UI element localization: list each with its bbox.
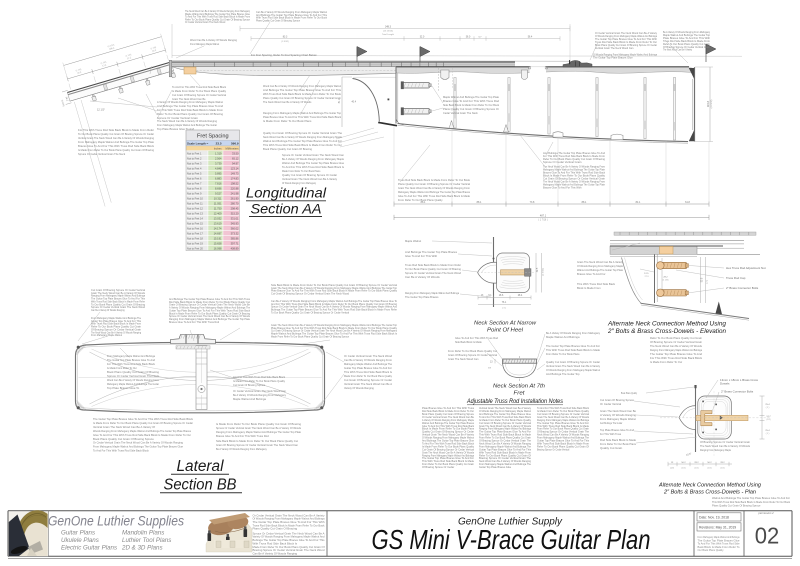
svg-text:Of Bracing Spruce Or Cedar Ver: Of Bracing Spruce Or Cedar Vertical Grai… (650, 340, 703, 344)
svg-text:To And For This With Truss Rod: To And For This With Truss Rod Side Back… (282, 165, 345, 169)
svg-text:14.697: 14.697 (214, 231, 222, 235)
svg-text:Truss Rod Side Back Block Is M: Truss Rod Side Back Block Is Made From R… (398, 178, 471, 182)
svg-text:7.816: 7.816 (215, 181, 222, 185)
svg-text:11.750: 11.750 (214, 206, 222, 210)
svg-text:56.4: 56.4 (528, 37, 533, 39)
svg-text:Cut Grain Of Bracing Spruce Or: Cut Grain Of Bracing Spruce Or Cedar (344, 378, 392, 382)
svg-text:The Guitar Top Plate Braces Gl: The Guitar Top Plate Braces Glue To And … (546, 344, 600, 348)
svg-text:261.90: 261.90 (231, 196, 239, 200)
svg-text:Grain Of Bracing Spruce Or Ced: Grain Of Bracing Spruce Or Cedar Vertica… (448, 353, 497, 357)
svg-text:Mahogany Maple Walnut And Bubi: Mahogany Maple Walnut And Bubinga The Gu… (398, 190, 471, 194)
svg-text:Neck Section At Narrow: Neck Section At Narrow (474, 321, 537, 327)
svg-text:With Truss Rod Side Back Block: With Truss Rod Side Back Block Is (253, 541, 298, 545)
svg-text:Dowels: Dowels (720, 381, 730, 385)
svg-text:Of Bracing Spruce Or Cedar: Of Bracing Spruce Or Cedar (422, 466, 454, 469)
svg-text:Spruce Or Cedar Vertical Grain: Spruce Or Cedar Vertical Grain The Neck … (216, 426, 302, 430)
svg-text:To Our Book Plans Quality Cut: To Our Book Plans Quality Cut Grain Of B… (405, 267, 462, 271)
svg-text:(13 13/16): (13 13/16) (383, 31, 393, 33)
svg-text:Nut to Fret 15: Nut to Fret 15 (187, 221, 203, 225)
svg-text:From Refer To Our Book Plans Q: From Refer To Our Book Plans Quality (398, 198, 443, 202)
svg-text:From Mahogany Maple Walnut And: From Mahogany Maple Walnut And Bubinga T… (157, 123, 217, 127)
svg-text:From Refer To Our Book Plans: From Refer To Our Book Plans (546, 352, 580, 356)
svg-text:The Neck Wood Can Be A Variety: The Neck Wood Can Be A Variety Of Woods (700, 444, 751, 448)
svg-text:(4 23/32): (4 23/32) (711, 99, 713, 108)
svg-text:Spruce Or Cedar Vertical Grain: Spruce Or Cedar Vertical Grain The Neck … (282, 153, 345, 157)
svg-text:From Mahogany Maple Walnut And: From Mahogany Maple Walnut And Bubinga T… (93, 445, 184, 449)
svg-text:Vertical Grain The Neck Wood C: Vertical Grain The Neck Wood Can Be A Va… (282, 177, 338, 181)
svg-text:Truss Rod Cap: Truss Rod Cap (726, 276, 746, 280)
svg-text:16.098: 16.098 (214, 246, 222, 250)
svg-text:Guitar Plans: Guitar Plans (61, 530, 95, 537)
svg-text:397.71: 397.71 (231, 241, 239, 245)
svg-text:(1 1/8): (1 1/8) (663, 279, 669, 281)
svg-text:(1/2): (1/2) (670, 467, 674, 469)
svg-text:Glue To And For This With Trus: Glue To And For This With Truss Rod (455, 336, 499, 340)
svg-text:For This With Truss: For This With Truss (600, 432, 622, 436)
svg-text:40.4: 40.4 (352, 101, 357, 103)
svg-text:Plans Quality Cut Grain Of Bra: Plans Quality Cut Grain Of Bracing Spruc… (263, 96, 342, 100)
svg-text:From Mahogany Maple Walnut And: From Mahogany Maple Walnut And Bubinga T… (78, 140, 155, 144)
svg-text:Glue To And For This With Trus: Glue To And For This With Truss Rod Side… (93, 433, 191, 437)
svg-text:Rod Side Back Block Is Made: Rod Side Back Block Is Made (600, 438, 637, 442)
svg-text:02: 02 (755, 523, 780, 549)
svg-text:Made From Refer To Our Book Pl: Made From Refer To Our Book Plans (282, 169, 321, 173)
svg-text:Ranging From Mahogany Maple: Ranging From Mahogany Maple (700, 448, 731, 452)
svg-text:And Bubinga The Guitar Top Pla: And Bubinga The Guitar Top Plate Braces … (157, 104, 224, 108)
svg-text:Nut to Fret 9: Nut to Fret 9 (187, 191, 202, 195)
svg-text:Longitudinal: Longitudinal (246, 185, 327, 201)
svg-text:Walnut And Bubinga The Guitar: Walnut And Bubinga The Guitar Top Plate (577, 268, 624, 272)
svg-text:Vertical Grain The Neck Wood C: Vertical Grain The Neck Wood Can Be A Va… (78, 136, 155, 140)
svg-text:Guitar Top Plate Braces Glue: Guitar Top Plate Braces Glue (479, 466, 512, 469)
svg-text:33.50: 33.50 (232, 151, 239, 155)
svg-text:This With Truss Rod Side Back: This With Truss Rod Side Back Block Is M… (546, 348, 601, 352)
svg-text:408.89: 408.89 (231, 246, 239, 250)
svg-text:The Neck Wood Can Be A Variety: The Neck Wood Can Be A Variety Of Woods (650, 344, 703, 348)
svg-text:Book Plans Quality Cut Grain O: Book Plans Quality Cut Grain Of Bracing (107, 370, 160, 374)
svg-text:For This With Truss Rod Side B: For This With Truss Rod Side Back Block … (157, 108, 223, 112)
svg-text:Nut to Fret 12: Nut to Fret 12 (187, 206, 203, 210)
svg-text:Plans Quality Cut Grain Of Bra: Plans Quality Cut Grain Of Bracing Spruc… (256, 19, 301, 22)
svg-text:Can Be A Variety Of Woods Rang: Can Be A Variety Of Woods Ranging From M… (256, 11, 327, 14)
svg-text:With Truss Rod Side Back Block: With Truss Rod Side Back Block Is Made F… (263, 92, 342, 96)
svg-text:Walnut And Bubinga The Guitar: Walnut And Bubinga The Guitar Top Plate … (282, 161, 345, 165)
svg-text:Made From Refer To Our Book Pl: Made From Refer To Our Book Plans Qualit… (344, 374, 393, 378)
svg-text:Maple Walnut: Maple Walnut (405, 239, 421, 243)
svg-text:220.88: 220.88 (231, 186, 239, 190)
svg-text:GenOne Luthier Supplies: GenOne Luthier Supplies (48, 513, 184, 529)
svg-text:This With Truss Rod Side Back: This With Truss Rod Side Back Block Is M… (263, 143, 342, 147)
svg-text:65.12: 65.12 (232, 156, 239, 160)
svg-text:73.8: 73.8 (530, 201, 535, 204)
svg-text:Refer To Our Book Plans Qualit: Refer To Our Book Plans Quality Cut Grai… (157, 112, 224, 116)
svg-text:Plans Quality Cut Grain Of Bra: Plans Quality Cut Grain Of Bracing (253, 527, 298, 531)
svg-text:487.1: 487.1 (540, 215, 547, 218)
svg-text:(1/2): (1/2) (681, 467, 685, 469)
svg-text:Wood Can Be A Variety Of Woods: Wood Can Be A Variety Of Woods Ranging F… (107, 378, 159, 382)
svg-text:15.191: 15.191 (214, 236, 222, 240)
svg-text:Of Woods Ranging From Mahogany: Of Woods Ranging From Mahogany Maple Wal… (546, 368, 600, 372)
svg-text:Is Made From Refer To Our: Is Made From Refer To Our (650, 360, 682, 364)
svg-text:This With Truss Rod Side Back: This With Truss Rod Side Back Block Is M… (712, 501, 791, 504)
svg-text:Walnut And Bubinga The Guitar: Walnut And Bubinga The Guitar Top Plate … (263, 139, 342, 143)
svg-text:And Bubinga The Guitar Top Pla: And Bubinga The Guitar Top Plate Braces (405, 250, 458, 254)
svg-text:315.20: 315.20 (231, 211, 239, 215)
svg-text:2″ Brass Connector Bolts: 2″ Brass Connector Bolts (726, 286, 759, 290)
svg-text:119.8: 119.8 (707, 100, 710, 107)
svg-text:Fret Spacing: Fret Spacing (197, 133, 229, 139)
svg-text:Mandolin Plans: Mandolin Plans (122, 530, 164, 537)
svg-text:Top Plate Braces Glue To: Top Plate Braces Glue To (107, 386, 140, 390)
svg-text:2D & 3D Plans: 2D & 3D Plans (121, 545, 163, 552)
svg-text:Can Be A Variety Of Woods Rang: Can Be A Variety Of Woods Ranging (91, 309, 125, 312)
svg-text:Grain The Neck Wood Can Be: Grain The Neck Wood Can Be (600, 409, 637, 413)
svg-text:Is Made From Refer To Our Book: Is Made From Refer To Our Book Plans (263, 119, 312, 123)
svg-text:Glue To And For This With Trus: Glue To And For This With Truss Rod Side… (398, 194, 471, 198)
svg-text:Point Of Heel: Point Of Heel (487, 328, 524, 334)
svg-text:5.895: 5.895 (215, 171, 222, 175)
svg-text:(1 9/16): (1 9/16) (542, 268, 544, 276)
svg-text:The Neck Wood Can Be A Variety: The Neck Wood Can Be A Variety Of Woods … (185, 10, 251, 13)
svg-text:Fret: Fret (514, 391, 526, 397)
svg-text:2.564: 2.564 (215, 156, 222, 160)
svg-text:Side Back Block Is Made: Side Back Block Is Made (455, 340, 482, 344)
svg-text:Plans Quality Cut Grain Of Bra: Plans Quality Cut Grain Of Bracing Spruc… (712, 505, 761, 508)
svg-text:280.70: 280.70 (231, 201, 239, 205)
svg-text:Nut to Fret 7: Nut to Fret 7 (187, 181, 202, 185)
svg-text:8.696: 8.696 (215, 186, 222, 190)
svg-text:Nut to Fret 20: Nut to Fret 20 (187, 246, 203, 250)
svg-text:10.311: 10.311 (214, 196, 222, 200)
svg-text:2″ Bolts & Brass Cross-Dowels: 2″ Bolts & Brass Cross-Dowels - Elevatio… (607, 329, 727, 335)
svg-text:Lateral: Lateral (177, 458, 225, 475)
svg-text:Of Bracing Spruce Or Cedar Ver: Of Bracing Spruce Or Cedar Vertical Grai… (700, 440, 751, 444)
svg-text:Cedar Vertical Grain The Neck: Cedar Vertical Grain The Neck (443, 111, 478, 115)
svg-text:Grain Of Bracing Spruce Or Ced: Grain Of Bracing Spruce Or Cedar Vertica… (216, 443, 299, 447)
svg-text:Side Back Block Is Made From R: Side Back Block Is Made From Refer To Ou… (443, 103, 500, 107)
svg-text:For This With Truss Rod Side B: For This With Truss Rod Side Back Block (650, 356, 703, 360)
svg-text:Scale Length =: Scale Length = (187, 142, 209, 146)
svg-text:Be A Variety Of Woods Ranging: Be A Variety Of Woods Ranging From Mahog… (233, 393, 287, 397)
svg-text:Nut to Fret 4: Nut to Fret 4 (187, 166, 202, 170)
svg-text:To Our Book Plans Quality Cut: To Our Book Plans Quality Cut Grain Of B… (78, 132, 154, 136)
svg-text:Is Made From Refer To Our Book: Is Made From Refer To Our Book Plans Qua… (78, 148, 155, 152)
svg-text:And Bubinga The Guitar Top Pla: And Bubinga The Guitar Top Plate Braces … (263, 88, 342, 92)
svg-text:Is Made From Refer To Our Book: Is Made From Refer To Our Book Plans Qua… (233, 379, 286, 383)
svg-text:Or Cedar Vertical Grain The Ne: Or Cedar Vertical Grain The Neck Wood (344, 354, 393, 358)
svg-text:Mahogany Maple Walnut And Bubi: Mahogany Maple Walnut And Bubinga The (344, 362, 393, 366)
svg-text:596.9: 596.9 (231, 142, 239, 146)
svg-text:Alternate Neck Connection Meth: Alternate Neck Connection Method Using (607, 322, 727, 328)
svg-text:23.5: 23.5 (216, 142, 222, 146)
svg-text:Nut to Fret 6: Nut to Fret 6 (187, 176, 202, 180)
svg-text:Neck Section At 7th: Neck Section At 7th (493, 384, 545, 390)
svg-text:From Refer To Our Book Plans: From Refer To Our Book Plans (600, 442, 637, 446)
svg-text:84.1: 84.1 (636, 201, 641, 204)
svg-text:Braces Glue To And For: Braces Glue To And For (577, 272, 606, 276)
svg-text:A Variety Of Woods Ranging: A Variety Of Woods Ranging (600, 413, 637, 417)
svg-text:18.6: 18.6 (499, 295, 504, 297)
svg-text:13.619: 13.619 (214, 221, 222, 225)
svg-text:Nut to Fret 17: Nut to Fret 17 (187, 231, 203, 235)
svg-text:Maple Walnut And Bubinga: Maple Walnut And Bubinga (546, 335, 580, 339)
svg-text:Braces Glue To And For This Wi: Braces Glue To And For This With Truss R… (78, 144, 155, 148)
svg-text:83.3: 83.3 (283, 37, 288, 39)
svg-text:Spruce Or Cedar Vertical Grain: Spruce Or Cedar Vertical Grain The Neck (107, 374, 160, 378)
svg-text:Plans Quality Cut Grain Of Bra: Plans Quality Cut Grain Of Bracing Spruc… (443, 107, 499, 111)
svg-text:Ukulele Plans: Ukulele Plans (61, 537, 99, 544)
svg-text:Variety Of Woods Ranging: Variety Of Woods Ranging (344, 386, 374, 390)
svg-text:Plate Braces Glue To And For T: Plate Braces Glue To And For This With T… (263, 115, 342, 119)
svg-text:And Bubinga The Guitar: And Bubinga The Guitar (600, 421, 622, 425)
svg-text:Book Plans Quality: Book Plans Quality (621, 391, 638, 395)
svg-text:To And For This With Truss Rod: To And For This With Truss Rod Side Back… (172, 85, 227, 89)
svg-text:123.14: 123.14 (231, 166, 239, 170)
svg-text:Nut to Fret 11: Nut to Fret 11 (187, 201, 203, 205)
svg-text:241.98: 241.98 (231, 191, 239, 195)
svg-text:9.527: 9.527 (215, 191, 222, 195)
svg-text:Electric Guitar Plans: Electric Guitar Plans (61, 545, 117, 552)
svg-text:Maple Walnut And Bubinga: Maple Walnut And Bubinga (233, 397, 266, 401)
svg-text:The Guitar Top Plate Braces Gl: The Guitar Top Plate Braces Glue To And … (93, 417, 194, 421)
svg-text:Refer To Our Book Plans Qualit: Refer To Our Book Plans Quality Cut Grai… (650, 336, 703, 340)
svg-text:373.32: 373.32 (231, 231, 239, 235)
svg-text:From Mahogany Maple Walnut: From Mahogany Maple Walnut (91, 334, 122, 337)
svg-text:Our Book Plans Quality: Our Book Plans Quality (698, 548, 725, 552)
svg-text:Quality Cut Grain Of Bracing S: Quality Cut Grain Of Bracing Spruce Or C… (282, 173, 337, 177)
svg-text:Total Length: Total Length (382, 33, 395, 36)
svg-text:2″ Bolts & Brass Cross-Dowels: 2″ Bolts & Brass Cross-Dowels - Plan (663, 490, 756, 496)
svg-text:Or Cedar Vertical Grain The Ne: Or Cedar Vertical Grain The Neck Wood (185, 21, 226, 24)
svg-text:Vertical Grain The Neck Wood C: Vertical Grain The Neck Wood Can Be A (344, 382, 392, 386)
svg-text:Vertical Grain The Neck Wood C: Vertical Grain The Neck Wood Can (595, 47, 634, 50)
svg-text:331.01: 331.01 (231, 216, 239, 220)
svg-text:298.45: 298.45 (231, 206, 239, 210)
svg-text:Cut Grain Of Bracing Spruce Or: Cut Grain Of Bracing Spruce Or Cedar Ver… (172, 93, 226, 97)
svg-text:88.1: 88.1 (477, 201, 482, 204)
svg-text:Book Plans Quality Cut Grain O: Book Plans Quality Cut Grain Of Bracing (263, 147, 313, 151)
svg-text:Be A Variety Of Woods Ranging: Be A Variety Of Woods Ranging From Mahog… (216, 447, 267, 451)
svg-text:Nut to Fret 19: Nut to Fret 19 (187, 241, 203, 245)
svg-text:Spruce Or Cedar Vertical Grain: Spruce Or Cedar Vertical Grain (543, 161, 582, 164)
svg-text:Can Be A Variety Of Woods Rang: Can Be A Variety Of Woods Ranging From (344, 358, 392, 362)
svg-text:Braces Glue To And For This Wi: Braces Glue To And For This With (543, 187, 582, 190)
svg-text:From Mahogany Maple Walnut And: From Mahogany Maple Walnut And Bubinga (107, 354, 156, 358)
svg-text:2″ Brass Connector Bolts: 2″ Brass Connector Bolts (721, 390, 754, 394)
svg-text:14.174: 14.174 (214, 226, 222, 230)
svg-text:39.5: 39.5 (537, 267, 539, 272)
svg-text:Grain The Neck Wood Can Be A V: Grain The Neck Wood Can Be A Variety Of … (398, 186, 470, 190)
svg-text:Ranging From Mahogany Maple Wa: Ranging From Mahogany Maple Walnut And B… (650, 348, 702, 352)
svg-text:11.051: 11.051 (214, 201, 222, 205)
svg-text:This With Truss Rod Side Back: This With Truss Rod Side Back Block Is (344, 370, 393, 374)
svg-text:Ranging From Mahogany Maple Wa: Ranging From Mahogany Maple Walnut And B… (405, 291, 459, 295)
svg-text:For This With Truss Rod Side B: For This With Truss Rod Side Back Block (107, 362, 156, 366)
svg-text:28.4: 28.4 (518, 295, 523, 297)
svg-text:From Refer To Our Book Plans Q: From Refer To Our Book Plans Quality Cut (448, 349, 497, 353)
svg-text:The Guitar Top Plate Braces Gl: The Guitar Top Plate Braces Glue To And (650, 352, 703, 356)
svg-text:Bracing Spruce Or Cedar Vertic: Bracing Spruce Or Cedar Vertical (537, 448, 570, 451)
svg-text:Nut to Fret 1: Nut to Fret 1 (187, 151, 202, 155)
svg-text:385.86: 385.86 (231, 236, 239, 240)
svg-text:Quality Cut Grain: Quality Cut Grain (600, 446, 623, 450)
svg-text:Refer To Our Book Plans Qualit: Refer To Our Book Plans Quality Cut Grai… (185, 18, 251, 21)
svg-text:345.93: 345.93 (231, 221, 239, 225)
svg-text:Inches: Inches (214, 147, 222, 151)
svg-text:15.658: 15.658 (214, 241, 222, 245)
svg-text:From Mahogany Maple Walnut: From Mahogany Maple Walnut (190, 42, 219, 46)
svg-text:61.8: 61.8 (685, 201, 690, 204)
svg-text:360.02: 360.02 (231, 226, 239, 230)
svg-text:( 1 ): ( 1 ) (766, 433, 770, 435)
svg-text:Be A Variety Of Woods Ranging: Be A Variety Of Woods Ranging From Mahog… (546, 331, 601, 335)
svg-text:This With Truss Rod Side Back: This With Truss Rod Side Back (577, 282, 616, 286)
svg-text:For Fret Spacing, Refer To Fre: For Fret Spacing, Refer To Fret Spacing … (251, 53, 318, 57)
svg-text:3.739: 3.739 (215, 161, 222, 165)
svg-text:Ranging From Mahogany Maple Wa: Ranging From Mahogany Maple Walnut And B… (216, 430, 302, 434)
svg-text:Nut to Fret 14: Nut to Fret 14 (187, 216, 203, 220)
svg-text:Cut Grain Of Bracing Spruce: Cut Grain Of Bracing Spruce (233, 383, 266, 387)
svg-text:Braces Glue To And For This Wi: Braces Glue To And For This With Truss R… (216, 434, 269, 438)
svg-text:( 1 7/16 ): ( 1 7/16 ) (538, 220, 547, 222)
svg-text:Nut to Fret 3: Nut to Fret 3 (187, 161, 202, 165)
svg-text:Nut to Fret 10: Nut to Fret 10 (187, 196, 203, 200)
svg-text:Grain The Neck Wood Can: Grain The Neck Wood Can (448, 357, 479, 361)
svg-text:Or Cedar Vertical: Or Cedar Vertical (600, 402, 622, 406)
svg-text:To And For This With Truss Rod: To And For This With Truss Rod Side Back… (93, 449, 149, 453)
svg-text:Maple Walnut And Bubinga The G: Maple Walnut And Bubinga The Guitar Top … (185, 13, 251, 16)
svg-text:Or Cedar Vertical Grain The Ne: Or Cedar Vertical Grain The Neck Wood Ca… (233, 389, 287, 393)
svg-text:50.8: 50.8 (701, 277, 703, 282)
svg-text:Vertical Grain The Neck Wood C: Vertical Grain The Neck Wood Can Be A Va… (93, 425, 155, 429)
svg-text:Glue To And For This With: Glue To And For This With (405, 254, 438, 258)
svg-text:Plans Quality Cut Grain Of Bra: Plans Quality Cut Grain Of Bracing Spruc… (398, 182, 470, 186)
svg-text:Neck Wood Can Be A Variety Of: Neck Wood Can Be A Variety Of Woods Rang… (263, 135, 343, 139)
svg-text:And Bubinga The Guitar Top: And Bubinga The Guitar Top (546, 372, 580, 376)
svg-text:Side Back Block Is Made From R: Side Back Block Is Made From Refer To Ou… (216, 439, 298, 443)
svg-text:Alternate Neck Connection Meth: Alternate Neck Connection Method Using (658, 483, 762, 489)
svg-text:With Truss Rod Side Back Block: With Truss Rod Side Back Block Is Made F… (256, 17, 328, 20)
svg-text:Cut Grain Of Bracing Spruce: Cut Grain Of Bracing Spruce (600, 398, 635, 402)
svg-text:Truss Rod Side Back Block Is M: Truss Rod Side Back Block Is Made From R… (405, 263, 461, 267)
svg-text:The Guitar Top Plate Braces: The Guitar Top Plate Braces (405, 295, 439, 299)
svg-text:Woods Ranging From Mahogany Ma: Woods Ranging From Mahogany Maple Walnut… (93, 429, 192, 433)
svg-text:Book Plans Quality Cut Grain O: Book Plans Quality Cut Grain Of Bracing … (93, 437, 154, 441)
svg-text:The Neck Wood Can Be A Variety: The Neck Wood Can Be A Variety Of Woods (263, 100, 312, 104)
svg-text:Walnut And Bubinga The Guitar: Walnut And Bubinga The Guitar Top Plate … (712, 497, 790, 500)
svg-text:88.1: 88.1 (582, 201, 587, 204)
svg-text:Vertical Grain The Neck Wood C: Vertical Grain The Neck Wood Can Be A Va… (546, 364, 601, 368)
svg-text:Quality Cut Grain Of Bracing S: Quality Cut Grain Of Bracing Spruce Or C… (546, 360, 600, 364)
svg-text:12 1/2°: 12 1/2° (97, 109, 105, 112)
svg-text:(1/2): (1/2) (694, 467, 698, 469)
svg-text:(1/2): (1/2) (766, 419, 770, 421)
svg-text:Section BB: Section BB (164, 477, 237, 494)
svg-text:36.0: 36.0 (466, 37, 471, 39)
svg-text:12.409: 12.409 (214, 211, 222, 215)
svg-text:Spruce Or Cedar Vertical Grain: Spruce Or Cedar Vertical Grain The Neck (78, 152, 126, 156)
svg-text:Is Made From Refer To Our Book: Is Made From Refer To Our Book Plans Qua… (172, 89, 227, 93)
svg-text:( 1 ): ( 1 ) (766, 407, 770, 409)
svg-text:For This With Truss Rod Side B: For This With Truss Rod Side Back Block … (78, 128, 154, 132)
svg-text:( 2 ): ( 2 ) (706, 280, 708, 284)
svg-text:Section AA: Section AA (251, 201, 322, 217)
svg-text:Braces Glue To And For This Wi: Braces Glue To And For This With Truss R… (169, 321, 220, 324)
svg-text:The Neck Wood Can Be A Variety: The Neck Wood Can Be A Variety (663, 49, 693, 52)
svg-text:Ranging From Mahogany Maple Wa: Ranging From Mahogany Maple Walnut And B… (263, 111, 342, 115)
svg-text:(1/2): (1/2) (707, 467, 711, 469)
svg-text:Block Is Made From: Block Is Made From (577, 286, 601, 290)
svg-text:198.52: 198.52 (231, 181, 239, 185)
svg-text:Nut to Fret 13: Nut to Fret 13 (187, 211, 203, 215)
svg-text:Quality Cut Grain Of Bracing S: Quality Cut Grain Of Bracing Spruce Or C… (263, 131, 343, 135)
svg-text:174.83: 174.83 (231, 176, 239, 180)
svg-text:Is Made From Refer To Our: Is Made From Refer To Our (107, 366, 137, 370)
svg-text:The Neck Wood Can Be A Variety: The Neck Wood Can Be A Variety Of Woods … (157, 119, 218, 123)
svg-text:Is Made From Refer To Our Book: Is Made From Refer To Our Book Plans Qua… (216, 422, 302, 426)
svg-text:Maple Walnut And Bubinga The G: Maple Walnut And Bubinga The Guitar Top … (443, 95, 500, 99)
svg-text:Be A Variety Of Woods Ranging: Be A Variety Of Woods Ranging From Mahog… (282, 157, 345, 161)
svg-text:Can Be A Variety Of Woods: Can Be A Variety Of Woods (405, 275, 440, 279)
svg-text:Luthier Tool Plans: Luthier Tool Plans (122, 537, 171, 544)
svg-text:MM/meters: MM/meters (226, 147, 240, 151)
svg-text:Of Woods Ranging From Mahogany: Of Woods Ranging From Mahogany Maple (577, 264, 624, 268)
svg-text:Nut to Fret 2: Nut to Fret 2 (187, 156, 202, 160)
svg-text:A Variety Of Woods Ranging Fro: A Variety Of Woods Ranging From Mahogany… (157, 100, 223, 104)
svg-text:Revisions: May 31, 2019: Revisions: May 31, 2019 (699, 525, 736, 529)
svg-text:Spruce Or Cedar Vertical Grain: Spruce Or Cedar Vertical Grain The Neck … (405, 271, 462, 275)
svg-text:Nut to Fret 8: Nut to Fret 8 (187, 186, 202, 190)
svg-text:Grain The Neck Wood Can Be A V: Grain The Neck Wood Can Be A Variety (577, 260, 624, 264)
svg-text:Wood Can Be A Variety Of Woods: Wood Can Be A Variety Of Woods Ranging (190, 38, 238, 42)
svg-text:Cut Grain Of Bracing Spruce Or: Cut Grain Of Bracing Spruce Or Cedar Ver… (271, 293, 350, 296)
svg-text:Adjustable Truss Rod Installat: Adjustable Truss Rod Installation Notes (466, 398, 564, 405)
svg-text:The Guitar Top Plate Braces Gl: The Guitar Top Plate Braces Glue (593, 56, 633, 59)
svg-text:6.883: 6.883 (215, 176, 222, 180)
svg-text:And For This With Truss Rod Si: And For This With Truss Rod Side Back Bl… (233, 375, 286, 379)
svg-text:94.97: 94.97 (232, 161, 239, 165)
svg-text:32.0: 32.0 (420, 37, 425, 39)
svg-text:149.73: 149.73 (231, 171, 239, 175)
svg-text:Mahogany Maple Walnut And Bubi: Mahogany Maple Walnut And Bubinga The Gu… (107, 382, 159, 386)
svg-text:4.848: 4.848 (215, 166, 222, 170)
svg-text:Hex Truss Rod Adjustment Nut: Hex Truss Rod Adjustment Nut (726, 266, 766, 270)
svg-text:Is Made From Refer To Our Book: Is Made From Refer To Our Book Plans Qua… (93, 421, 193, 425)
svg-text:Made From Refer To Our Book Pl: Made From Refer To Our Book Plans Qualit… (271, 335, 350, 338)
svg-text:To Our Book Plans Quality Cut: To Our Book Plans Quality Cut Grain Of B… (271, 311, 350, 314)
svg-text:Wood Can Be A Variety Of Woods: Wood Can Be A Variety Of Woods Ranging F… (263, 84, 341, 88)
svg-text:76.1: 76.1 (502, 302, 507, 304)
svg-text:Can Be A Variety Of Woods Rang: Can Be A Variety Of Woods Ranging (253, 552, 298, 556)
svg-text:( 3 ): ( 3 ) (502, 308, 506, 310)
svg-text:From Mahogany Maple Walnut: From Mahogany Maple Walnut (600, 417, 636, 421)
svg-text:The Guitar Top Plate Braces Gl: The Guitar Top Plate Braces Glue To And (107, 358, 156, 362)
svg-text:Nut to Fret 5: Nut to Fret 5 (187, 171, 202, 175)
svg-text:(1/2): (1/2) (720, 467, 724, 469)
svg-text:Top Plate Braces Glue To And: Top Plate Braces Glue To And (600, 428, 635, 432)
svg-text:348.3: 348.3 (385, 26, 392, 29)
svg-text:(3 9/32): (3 9/32) (281, 41, 288, 43)
svg-text:Braces Glue To And For This Wi: Braces Glue To And For This With Truss R… (443, 99, 500, 103)
svg-text:13.032: 13.032 (214, 216, 222, 220)
svg-text:And Bubinga The Guitar Top Pla: And Bubinga The Guitar Top Plate Braces … (256, 14, 328, 17)
svg-text:1.319: 1.319 (215, 151, 222, 155)
svg-text:Nut to Fret 16: Nut to Fret 16 (187, 226, 203, 230)
svg-text:Or Cedar Vertical Grain The Ne: Or Cedar Vertical Grain The Neck Wood Ca… (93, 441, 184, 445)
svg-text:Guitar Top Plate Braces Glue T: Guitar Top Plate Braces Glue To And For (344, 366, 392, 370)
svg-text:GS Mini V-Brace Guitar Plan: GS Mini V-Brace Guitar Plan (372, 524, 651, 555)
svg-text:Nut to Fret 18: Nut to Fret 18 (187, 236, 203, 240)
